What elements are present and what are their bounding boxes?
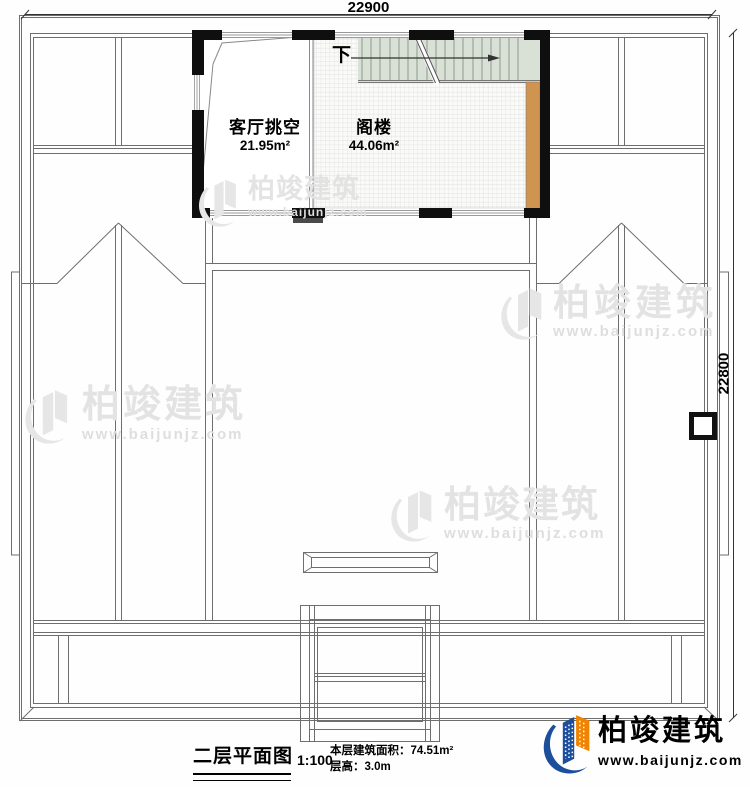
title-underline xyxy=(193,773,291,781)
courtyard-opening xyxy=(206,218,537,620)
wood-floor-strip xyxy=(526,82,540,209)
floor-area-info: 本层建筑面积：74.51m² xyxy=(330,746,453,758)
page-title: 二层平面图 xyxy=(193,747,293,766)
room-area-living-void: 21.95m² xyxy=(200,139,330,153)
dimension-right: 22800 xyxy=(717,339,732,409)
beam xyxy=(304,553,438,573)
floor-plan-page: 柏竣建筑 www.baijunjz.com 柏竣建筑 www.baijunjz.… xyxy=(0,0,750,787)
chimney xyxy=(692,415,715,438)
room-label-living-void: 客厅挑空 xyxy=(200,119,330,136)
room-area-attic: 44.06m² xyxy=(312,139,436,153)
brand-website: www.baijunjz.com xyxy=(598,753,743,767)
brand-name: 柏竣建筑 xyxy=(598,717,726,746)
porch-roof xyxy=(301,606,440,742)
room-label-attic: 阁楼 xyxy=(312,119,436,136)
stair-direction-label: 下 xyxy=(332,46,351,65)
brand-logo-icon xyxy=(540,709,597,782)
floor-height-info: 层高：3.0m xyxy=(330,762,391,774)
plan-scale: 1:100 xyxy=(297,753,333,767)
dimension-top: 22900 xyxy=(25,0,712,15)
